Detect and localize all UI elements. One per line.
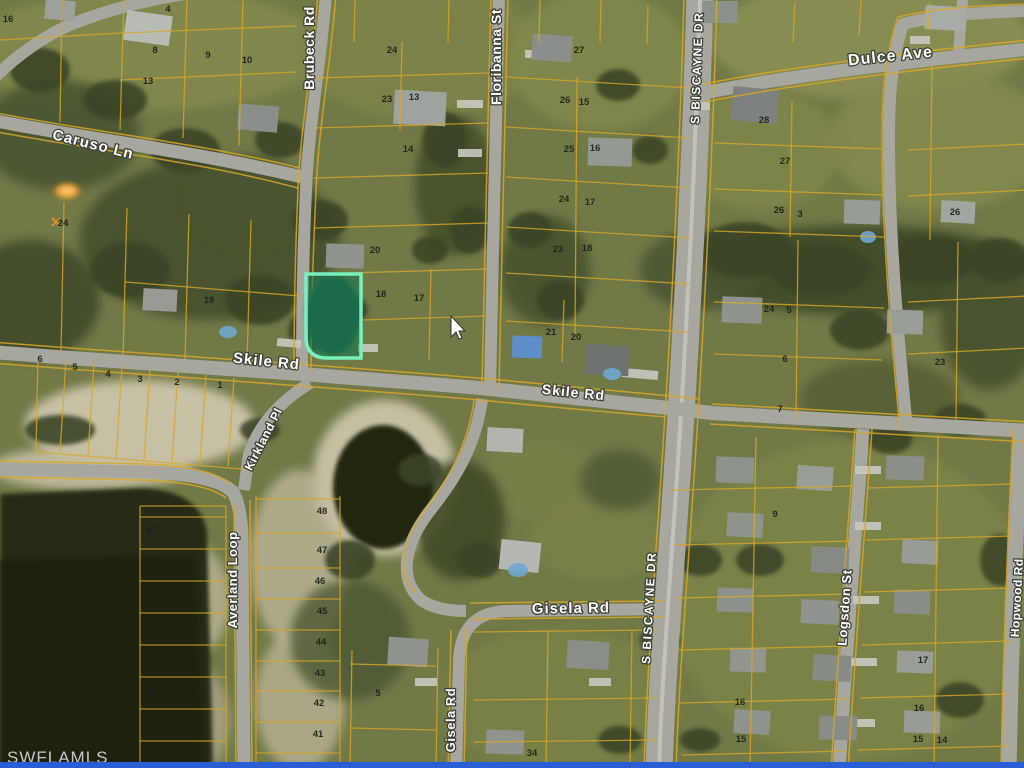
lot-number: 21 bbox=[546, 327, 557, 338]
building bbox=[142, 288, 177, 312]
driveway bbox=[910, 36, 930, 44]
building bbox=[886, 455, 925, 480]
lot-number: 9 bbox=[772, 509, 777, 520]
lot-number: 24 bbox=[58, 218, 69, 229]
lot-number: 15 bbox=[736, 734, 747, 745]
tree-cluster bbox=[450, 206, 490, 254]
building bbox=[387, 637, 429, 668]
pool bbox=[219, 326, 237, 338]
lot-number: 18 bbox=[582, 243, 593, 254]
pool bbox=[508, 563, 528, 577]
driveway bbox=[853, 596, 879, 604]
street-label-averland-loop: Averland Loop bbox=[225, 531, 240, 628]
pond-deep bbox=[0, 556, 205, 768]
street-label-floribanna-st: Floribanna St bbox=[488, 9, 504, 105]
lot-number: 16 bbox=[3, 14, 14, 25]
lot-number: 45 bbox=[317, 606, 328, 617]
driveway bbox=[855, 466, 881, 474]
lot-number: 17 bbox=[585, 197, 596, 208]
lot-number: 10 bbox=[242, 55, 253, 66]
driveway bbox=[589, 678, 611, 686]
lot-number: 41 bbox=[313, 729, 324, 740]
lot-number: 7 bbox=[777, 404, 782, 415]
tree-cluster bbox=[680, 728, 720, 752]
driveway bbox=[458, 149, 482, 157]
tree-cluster bbox=[83, 80, 147, 120]
lot-number: 3 bbox=[797, 209, 802, 220]
lot-number: 6 bbox=[37, 354, 42, 365]
lot-number: 47 bbox=[317, 545, 328, 556]
building bbox=[237, 103, 279, 132]
lot-number: 4 bbox=[165, 4, 171, 15]
tree-cluster bbox=[325, 540, 375, 580]
lot-number: 60 bbox=[146, 747, 157, 758]
tree-cluster bbox=[536, 280, 584, 320]
lot-number: 24 bbox=[387, 45, 398, 56]
lot-number: 2 bbox=[174, 377, 179, 388]
lot-number: 23 bbox=[935, 357, 946, 368]
lot-number: 26 bbox=[560, 95, 571, 106]
building bbox=[901, 539, 938, 565]
lot-number: 23 bbox=[382, 94, 393, 105]
tree-cluster bbox=[830, 310, 890, 350]
lot-number: 5 bbox=[786, 305, 792, 316]
lot-number: 62 bbox=[147, 684, 158, 695]
tree-cluster bbox=[458, 542, 502, 578]
tree-cluster bbox=[632, 136, 668, 164]
lot-number: 16 bbox=[590, 143, 601, 154]
lot-number: 20 bbox=[571, 332, 582, 343]
street-label-gisela-rd-s: Gisela Rd bbox=[443, 688, 458, 752]
tree-cluster bbox=[736, 544, 784, 576]
lot-number: 5 bbox=[375, 688, 381, 699]
building bbox=[512, 335, 543, 358]
lot-number: 28 bbox=[759, 115, 770, 126]
lot-number: 66 bbox=[148, 557, 159, 568]
pool bbox=[603, 368, 621, 380]
lot-number: 42 bbox=[314, 698, 325, 709]
lot-number: 19 bbox=[204, 295, 215, 306]
lot-number: 16 bbox=[914, 703, 925, 714]
building bbox=[812, 654, 851, 682]
building bbox=[326, 243, 365, 268]
terrain-patch bbox=[580, 450, 660, 510]
lot-number: 34 bbox=[527, 748, 538, 759]
lot-number: 15 bbox=[913, 734, 924, 745]
lot-number: 27 bbox=[574, 45, 585, 56]
street-label-brubeck-rd: Brubeck Rd bbox=[301, 6, 317, 90]
building bbox=[887, 309, 924, 334]
sun-flare bbox=[51, 181, 83, 201]
lot-number: 17 bbox=[414, 293, 425, 304]
building bbox=[566, 640, 609, 670]
driveway bbox=[855, 522, 881, 530]
building bbox=[716, 456, 755, 483]
bottom-bar bbox=[0, 762, 1024, 768]
lot-number: 46 bbox=[315, 576, 326, 587]
aerial-map-image: Caruso LnBrubeck RdFloribanna StS BISCAY… bbox=[0, 0, 1024, 768]
lot-number: 14 bbox=[403, 144, 414, 155]
building bbox=[531, 34, 573, 63]
lot-number: 24 bbox=[559, 194, 570, 205]
lot-number: 26 bbox=[774, 205, 785, 216]
tree-cluster bbox=[225, 275, 295, 325]
building bbox=[733, 709, 770, 735]
tree-cluster bbox=[770, 244, 870, 296]
lot-number: 15 bbox=[579, 97, 590, 108]
highlighted-parcel[interactable] bbox=[306, 274, 361, 358]
lot-number: 16 bbox=[735, 697, 746, 708]
lot-number: 9 bbox=[205, 50, 210, 61]
lot-number: 48 bbox=[317, 506, 328, 517]
tree-cluster bbox=[25, 415, 95, 445]
building bbox=[44, 0, 76, 21]
building bbox=[730, 647, 767, 672]
lot-number: 18 bbox=[376, 289, 387, 300]
lot-number: 20 bbox=[370, 245, 381, 256]
lot-number: 67 bbox=[147, 525, 158, 536]
street-label-gisela-rd-e: Gisela Rd bbox=[532, 599, 610, 617]
building bbox=[894, 589, 931, 614]
lot-number: 24 bbox=[764, 304, 775, 315]
lot-number: 26 bbox=[950, 207, 961, 218]
building bbox=[123, 10, 173, 46]
lot-number: 4 bbox=[105, 369, 111, 380]
lot-number: 64 bbox=[148, 622, 159, 633]
lot-number: 5 bbox=[72, 362, 78, 373]
building bbox=[731, 86, 780, 124]
lot-number: 61 bbox=[146, 715, 157, 726]
tree-cluster bbox=[412, 236, 448, 264]
lot-number: 13 bbox=[409, 92, 420, 103]
building bbox=[726, 512, 763, 538]
driveway bbox=[415, 678, 437, 686]
tree-cluster bbox=[936, 682, 984, 718]
building bbox=[717, 587, 754, 612]
lot-number: 14 bbox=[937, 735, 948, 746]
building bbox=[486, 427, 523, 453]
lot-number: 13 bbox=[143, 76, 154, 87]
lot-number: 65 bbox=[149, 589, 160, 600]
lot-number: 25 bbox=[564, 144, 575, 155]
lot-number: 44 bbox=[316, 637, 327, 648]
lot-number: 8 bbox=[152, 45, 157, 56]
tree-cluster bbox=[398, 454, 442, 486]
lot-number: 27 bbox=[780, 156, 791, 167]
building bbox=[722, 296, 763, 323]
lot-number: 43 bbox=[315, 668, 326, 679]
building bbox=[702, 1, 738, 23]
building bbox=[844, 199, 881, 224]
building bbox=[800, 599, 839, 625]
map-view[interactable]: Caruso LnBrubeck RdFloribanna StS BISCAY… bbox=[0, 0, 1024, 768]
lot-number: 63 bbox=[147, 653, 158, 664]
lot-number: 6 bbox=[782, 354, 787, 365]
lot-number: 3 bbox=[137, 374, 142, 385]
driveway bbox=[457, 100, 483, 108]
lot-number: 1 bbox=[217, 380, 223, 391]
lot-number: 23 bbox=[553, 244, 564, 255]
lot-number: 17 bbox=[918, 655, 929, 666]
